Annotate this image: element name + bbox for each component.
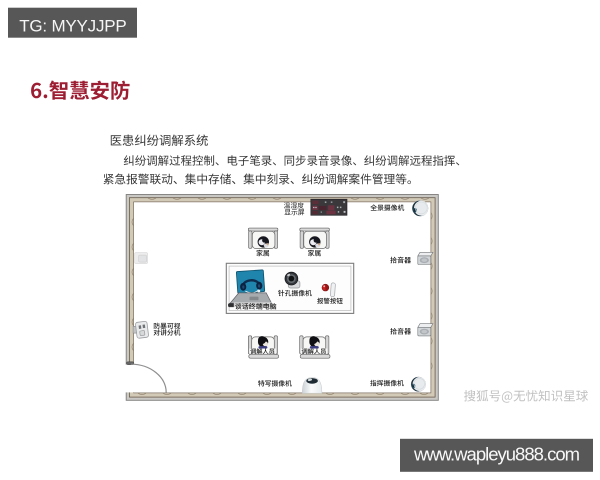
svg-text:TG: MYYJJPP: TG: MYYJJPP: [19, 16, 126, 35]
svg-text:www.wapleyu888.com: www.wapleyu888.com: [413, 444, 580, 465]
